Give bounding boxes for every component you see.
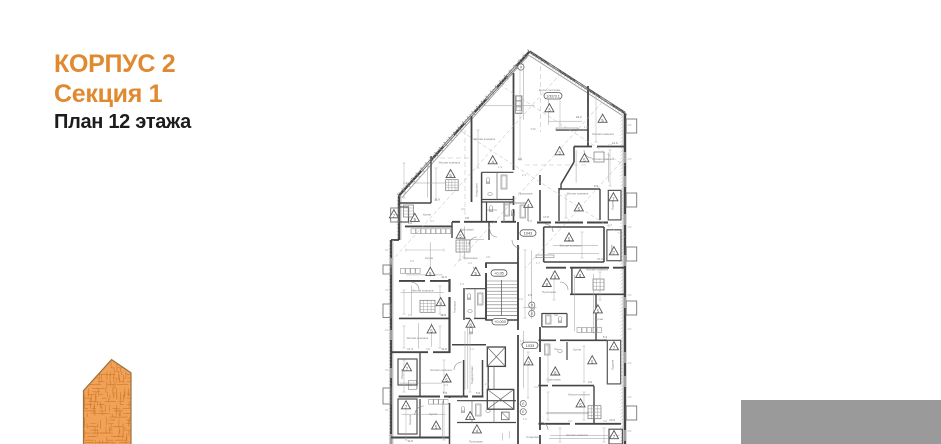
svg-text:11.9: 11.9 — [441, 275, 447, 279]
svg-text:11.8: 11.8 — [441, 347, 447, 351]
svg-text:Св: Св — [554, 347, 558, 351]
svg-text:2.2: 2.2 — [468, 261, 472, 265]
svg-text:Лоджия: Лоджия — [400, 368, 404, 379]
svg-text:Лоджия: Лоджия — [611, 199, 615, 210]
svg-text:+0.05: +0.05 — [494, 272, 504, 276]
svg-text:1/32/3.1: 1/32/3.1 — [546, 94, 560, 98]
svg-text:Прихожая: Прихожая — [464, 256, 478, 260]
svg-text:Кухня-гостиная: Кухня-гостиная — [539, 88, 561, 92]
svg-text:11.9: 11.9 — [434, 198, 440, 202]
svg-text:Кладовая: Кладовая — [526, 435, 540, 439]
svg-text:Кладовая: Кладовая — [475, 183, 479, 197]
svg-text:Прихожая: Прихожая — [547, 378, 561, 382]
svg-text:3.8: 3.8 — [531, 307, 536, 311]
svg-text:Жилая комната: Жилая комната — [430, 368, 452, 372]
svg-text:1.4: 1.4 — [460, 395, 464, 399]
svg-text:Кухня: Кухня — [423, 213, 431, 217]
svg-text:17.4: 17.4 — [407, 347, 413, 351]
svg-text:1.6: 1.6 — [460, 282, 464, 286]
svg-text:6.6: 6.6 — [408, 221, 413, 225]
svg-text:10.9: 10.9 — [609, 418, 615, 422]
svg-text:1.8: 1.8 — [584, 125, 588, 129]
svg-text:3.0: 3.0 — [603, 419, 607, 423]
svg-text:17.2: 17.2 — [597, 257, 603, 261]
svg-text:1.7: 1.7 — [536, 261, 540, 265]
svg-text:Лоджия: Лоджия — [610, 244, 614, 255]
svg-text:Жилая комната: Жилая комната — [567, 192, 589, 196]
svg-text:Прихожая: Прихожая — [469, 439, 483, 443]
svg-text:+0.000: +0.000 — [494, 320, 506, 324]
svg-text:3.60: 3.60 — [530, 127, 536, 131]
svg-text:Жилая комната: Жилая комната — [560, 244, 582, 248]
svg-text:2.6: 2.6 — [461, 207, 465, 211]
svg-text:Жилая комната: Жилая комната — [566, 433, 588, 437]
svg-text:3.8: 3.8 — [426, 347, 430, 351]
svg-text:3.9: 3.9 — [588, 380, 593, 384]
svg-text:2.0: 2.0 — [619, 259, 623, 263]
svg-text:2.1: 2.1 — [522, 173, 526, 177]
svg-text:Чулан: Чулан — [595, 317, 604, 321]
svg-text:1043: 1043 — [524, 232, 532, 236]
svg-text:Жилая комната: Жилая комната — [474, 137, 496, 141]
svg-text:5.3: 5.3 — [603, 335, 608, 339]
svg-text:5.8: 5.8 — [473, 266, 478, 270]
svg-text:Жилая комната: Жилая комната — [592, 157, 614, 161]
svg-text:Прихожая: Прихожая — [460, 227, 474, 231]
svg-text:Лоджия: Лоджия — [611, 359, 615, 370]
svg-text:Св: Св — [554, 313, 558, 317]
svg-text:2.4: 2.4 — [508, 73, 512, 77]
svg-text:Прихожая: Прихожая — [542, 290, 556, 294]
svg-text:Коридор: Коридор — [453, 301, 457, 313]
svg-text:3.3: 3.3 — [410, 259, 414, 263]
svg-text:Кухня: Кухня — [429, 412, 437, 416]
svg-text:3.2: 3.2 — [408, 383, 412, 387]
svg-text:1.2: 1.2 — [470, 347, 474, 351]
svg-text:3.8: 3.8 — [465, 216, 470, 220]
svg-text:Лоджия: Лоджия — [408, 414, 412, 425]
svg-text:2.2: 2.2 — [519, 297, 523, 301]
svg-text:5.9: 5.9 — [476, 391, 481, 395]
svg-text:17.8: 17.8 — [543, 215, 549, 219]
svg-text:9.9: 9.9 — [594, 184, 599, 188]
svg-text:11.0: 11.0 — [612, 141, 618, 145]
svg-text:Жилая комната: Жилая комната — [568, 393, 590, 397]
svg-text:1033: 1033 — [526, 344, 534, 348]
svg-text:11.8: 11.8 — [407, 439, 413, 443]
svg-text:Жилая комната: Жилая комната — [412, 288, 434, 292]
svg-text:5.9: 5.9 — [443, 391, 448, 395]
svg-text:Жилая комната: Жилая комната — [592, 132, 614, 136]
svg-text:2.6: 2.6 — [568, 419, 572, 423]
svg-text:3.1: 3.1 — [430, 219, 434, 223]
svg-text:2.2: 2.2 — [534, 385, 538, 389]
svg-text:1.9: 1.9 — [498, 165, 502, 169]
svg-text:22.2: 22.2 — [576, 115, 582, 119]
svg-text:Прихожая: Прихожая — [518, 192, 532, 196]
svg-text:3.5: 3.5 — [408, 313, 412, 317]
svg-text:2.4: 2.4 — [485, 382, 489, 386]
svg-text:Жилая комната: Жилая комната — [407, 336, 429, 340]
svg-text:1.6: 1.6 — [523, 417, 527, 421]
svg-text:2.8: 2.8 — [486, 255, 490, 259]
svg-text:2.9: 2.9 — [528, 293, 533, 297]
svg-text:Жилая комната: Жилая комната — [586, 268, 608, 272]
svg-text:Гардеробная: Гардеробная — [470, 366, 474, 385]
svg-text:1.8: 1.8 — [528, 219, 532, 223]
svg-text:Кухня: Кухня — [425, 256, 433, 260]
svg-text:2.3: 2.3 — [444, 383, 448, 387]
svg-text:Кухня: Кухня — [573, 347, 581, 351]
svg-text:4.0: 4.0 — [518, 157, 523, 161]
svg-text:11.6: 11.6 — [440, 313, 446, 317]
svg-text:Жилая комната: Жилая комната — [439, 161, 461, 165]
